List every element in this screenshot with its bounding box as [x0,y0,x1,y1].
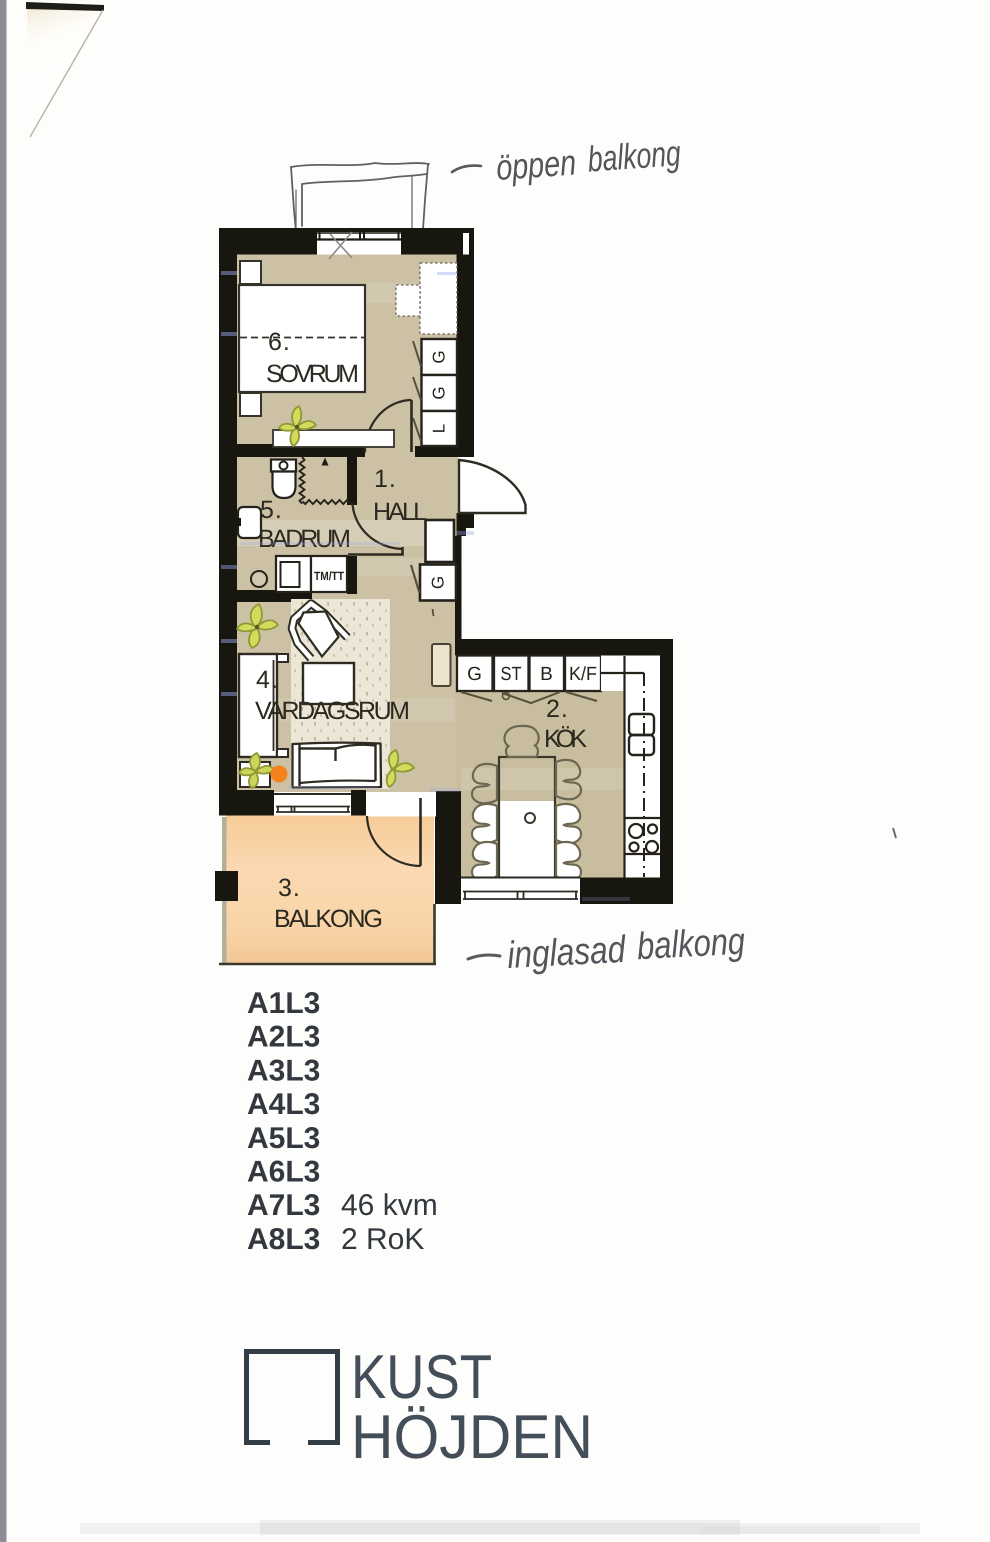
svg-text:K/F: K/F [569,664,597,685]
svg-text:G: G [429,576,448,589]
svg-text:BALKONG: BALKONG [274,905,384,933]
svg-text:5.: 5. [260,496,283,524]
svg-text:A8L3: A8L3 [247,1223,320,1256]
svg-text:A3L3: A3L3 [247,1054,320,1087]
svg-text:SOVRUM: SOVRUM [266,360,360,388]
svg-text:A5L3: A5L3 [247,1122,320,1155]
svg-text:A2L3: A2L3 [247,1021,320,1054]
svg-text:BADRUM: BADRUM [258,525,352,553]
svg-text:G: G [467,664,482,685]
svg-text:G: G [430,386,449,399]
svg-text:A6L3: A6L3 [247,1156,320,1189]
svg-text:öppen: öppen [495,141,578,187]
svg-text:VARDAGSRUM: VARDAGSRUM [255,697,411,725]
svg-text:L: L [430,424,449,433]
svg-text:ST: ST [501,664,522,685]
svg-text:6.: 6. [268,328,291,356]
svg-text:B: B [540,664,553,685]
svg-text:3.: 3. [278,874,301,902]
svg-text:HÖJDEN: HÖJDEN [351,1403,593,1472]
svg-text:KÖK: KÖK [544,725,588,753]
svg-text:2.: 2. [546,695,569,723]
svg-text:A7L3: A7L3 [247,1189,320,1222]
svg-text:46 kvm: 46 kvm [341,1189,438,1222]
svg-text:1.: 1. [374,465,397,493]
svg-text:G: G [430,350,449,363]
svg-text:HALL: HALL [373,498,428,526]
svg-text:A4L3: A4L3 [247,1088,320,1121]
svg-text:balkong: balkong [586,132,682,179]
svg-text:A1L3: A1L3 [247,987,320,1020]
svg-text:TM/TT: TM/TT [314,569,345,583]
svg-text:balkong: balkong [636,921,746,969]
svg-text:4.: 4. [256,666,279,694]
svg-text:2 RoK: 2 RoK [341,1223,424,1256]
svg-text:inglasad: inglasad [506,929,628,977]
svg-text:KUST: KUST [351,1343,492,1412]
